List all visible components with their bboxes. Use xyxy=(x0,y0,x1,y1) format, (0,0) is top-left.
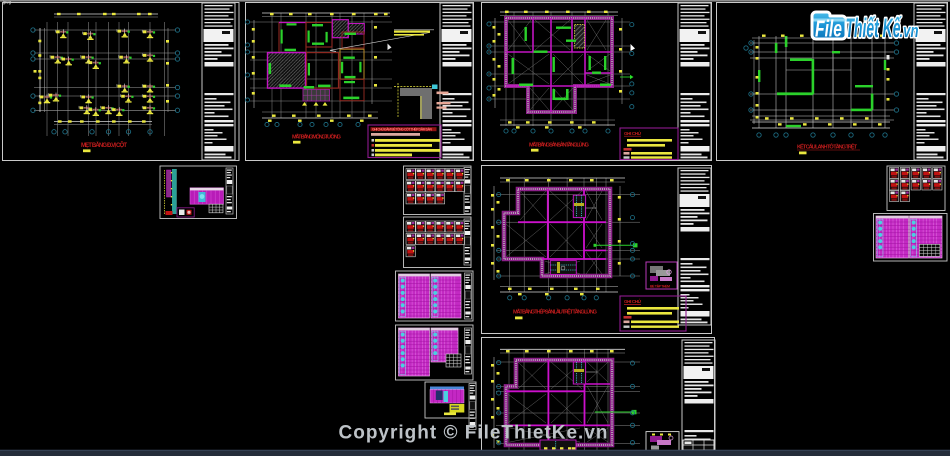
svg-text:MẸT BẰNG Đ.VỊ CỘT: MẸT BẰNG Đ.VỊ CỘT xyxy=(81,141,127,149)
svg-text:GHI CHÚ: GHI CHÚ xyxy=(624,298,642,304)
svg-text:MẰT BẰNG THÉP SÀN LẦU TRỆT TẦN: MẰT BẰNG THÉP SÀN LẦU TRỆT TẦNG LỬNG xyxy=(513,308,597,316)
svg-text:Thiết Kế: Thiết Kế xyxy=(846,13,903,43)
svg-text:GHI CHÚ ĐẦM BÊTÔNG CỐT THÉP DẦ: GHI CHÚ ĐẦM BÊTÔNG CỐT THÉP DẦM SÀN xyxy=(372,127,433,132)
svg-text:.vn: .vn xyxy=(900,21,919,41)
svg-text:MẰT BẰNG MÓNG TƯỜNG: MẰT BẰNG MÓNG TƯỜNG xyxy=(292,133,341,141)
svg-text:File: File xyxy=(815,16,842,42)
svg-text:KẾT CẤU LANH TÔ TẦNG TRỆT: KẾT CẤU LANH TÔ TẦNG TRỆT xyxy=(797,143,858,151)
svg-text:GHI CHÚ: GHI CHÚ xyxy=(624,130,642,136)
svg-text:BỂ TẬP THỂM: BỂ TẬP THỂM xyxy=(650,284,670,289)
svg-text:Copyright © FileThietKe.vn: Copyright © FileThietKe.vn xyxy=(339,423,608,444)
svg-text:MẰT BẰNG SÀN SÀN TẦNG LỬNG: MẰT BẰNG SÀN SÀN TẦNG LỬNG xyxy=(529,141,589,149)
